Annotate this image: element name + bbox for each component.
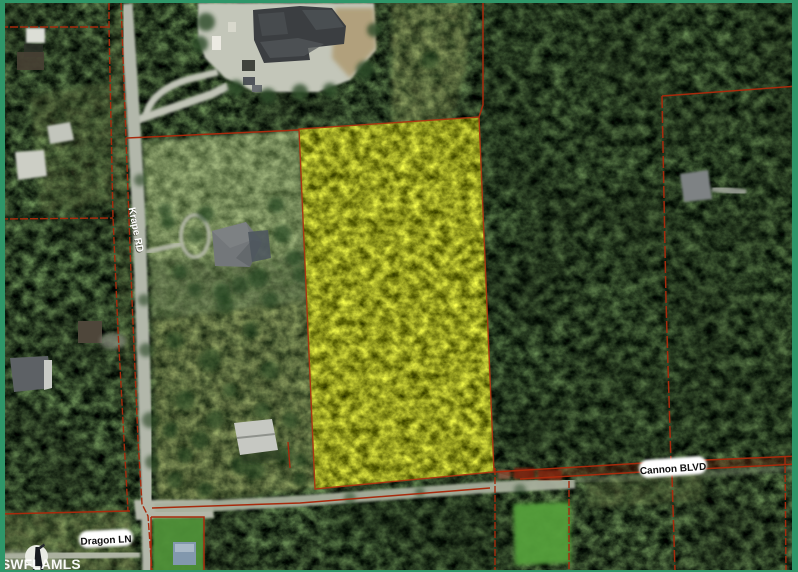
svg-text:SWFLAMLS: SWFLAMLS [1,557,81,572]
